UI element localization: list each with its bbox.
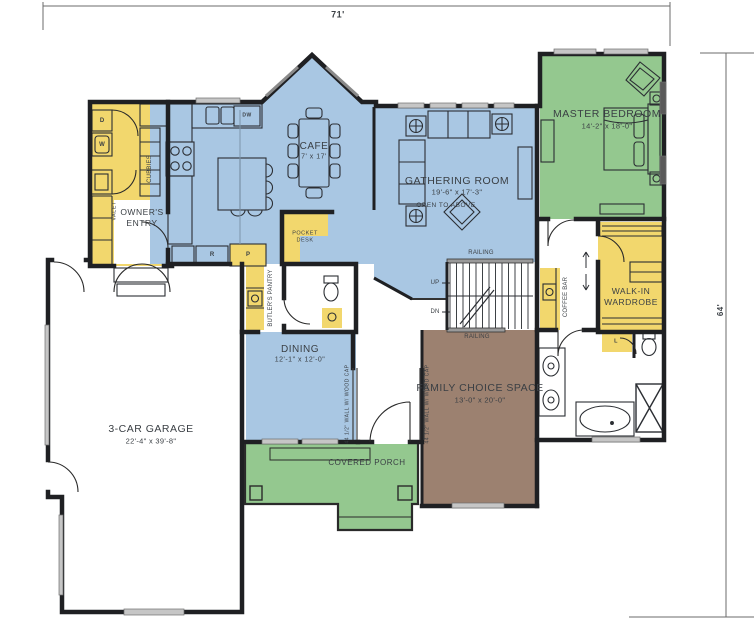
dimension-right-label: 64' [717,304,725,316]
bath-toilet-icon [642,333,656,356]
room-dims-gathering: 19'-6" x 17'-3" [432,188,483,196]
room-dims-master-bedroom: 14'-2" x 18'-0" [582,122,633,130]
room-dims-dining: 12'-1" x 12'-0" [275,357,326,364]
room-dims-cafe: 7' x 17' [301,154,327,161]
appliance-fridge-label: R [210,252,214,258]
room-dims-garage: 22'-4" x 39'-8" [126,437,177,445]
room-label-cafe: CAFE [300,142,329,152]
shower-icon [636,384,663,432]
floor-plan-drawing [0,0,754,643]
wall-note-right: 44 1/2" WALL W/ WOOD CAP [426,365,431,444]
room-dims-family-choice: 13'-0" x 20'-0" [455,396,506,404]
room-label-pocket-desk-2: DESK [297,238,314,244]
room-label-valet: VALET [112,201,118,221]
railing-top-label: RAILING [468,250,493,256]
linen-label: L [614,339,618,345]
stairs [442,263,533,329]
room-label-covered-porch: COVERED PORCH [328,459,405,467]
arrow-icon [583,252,589,290]
room-label-wardrobe-1: WALK-IN [612,287,651,296]
floor-plan: 71' 64' 3-CAR GARAGE 22'-4" x 39'-8" CAF… [0,0,754,643]
tub-icon [576,402,634,436]
appliance-dishwasher-label: DW [242,114,251,119]
room-label-garage: 3-CAR GARAGE [108,424,193,435]
room-label-master-bedroom: MASTER BEDROOM [553,109,661,120]
room-label-coffee-bar: COFFEE BAR [563,277,569,317]
appliance-dryer-label: D [100,118,104,124]
appliance-washer-label: W [99,142,105,148]
room-label-dining: DINING [281,345,319,355]
room-label-family-choice: FAMILY CHOICE SPACE [416,383,543,394]
room-label-owners-entry-2: ENTRY [126,219,157,228]
stairs-dn-label: DN [430,309,439,315]
railing-bottom-label: RAILING [464,334,489,340]
appliance-pantry-label: P [246,252,250,258]
room-note-open-to-above: OPEN TO ABOVE [416,203,475,210]
half-walls [353,368,424,440]
stairs-up-label: UP [431,280,440,286]
room-label-pocket-desk-1: POCKET [292,231,318,237]
room-label-butlers-pantry: BUTLER'S PANTRY [268,269,274,326]
room-label-owners-entry-1: OWNER'S [120,208,163,217]
room-label-cubbies: CUBBIES [147,155,153,183]
wall-note-left: 44 1/2" WALL W/ WOOD CAP [346,365,351,444]
room-label-gathering: GATHERING ROOM [405,176,509,187]
dimension-top-label: 71' [331,11,345,20]
room-label-wardrobe-2: WARDROBE [604,298,658,307]
